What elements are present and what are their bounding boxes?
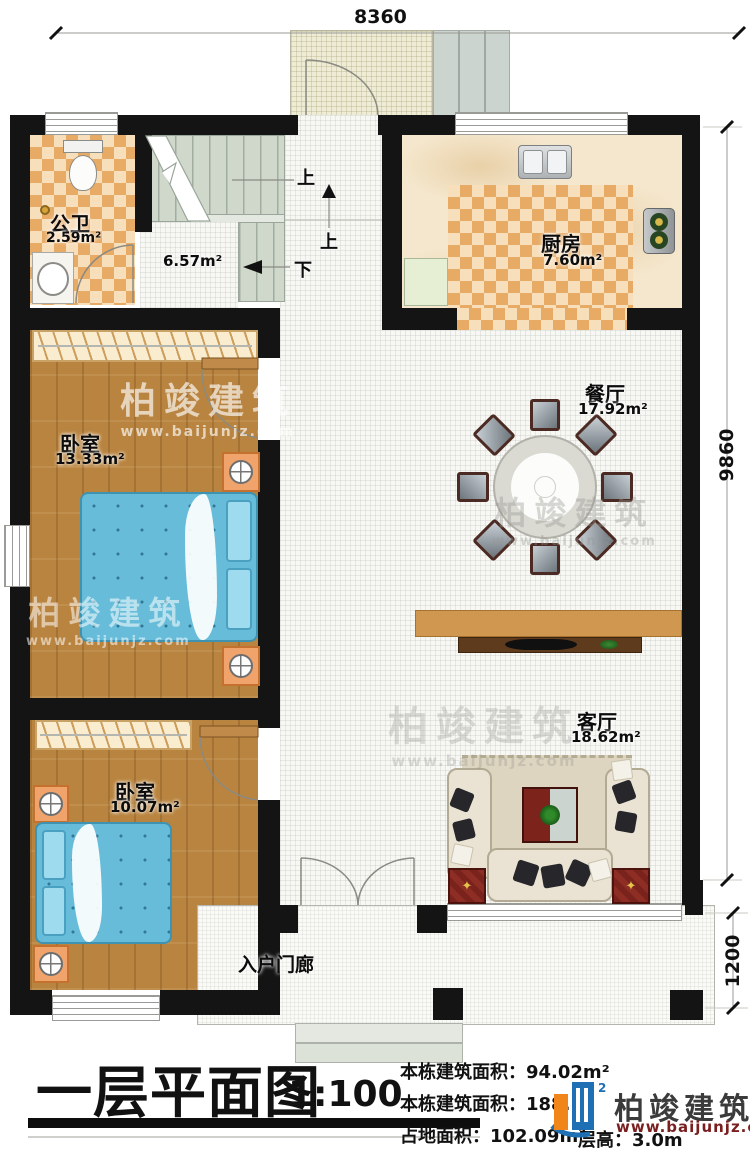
kitchen-area: 7.60m² bbox=[543, 251, 602, 269]
bedroom2-area: 10.07m² bbox=[110, 798, 180, 816]
scale-label: 1:100 bbox=[288, 1074, 403, 1115]
page-title: 一层平面图 bbox=[36, 1048, 321, 1129]
living-area: 18.62m² bbox=[571, 728, 641, 746]
stair-up-label-1: 上 bbox=[297, 164, 315, 190]
info-line-2: 本栋建筑面积：188. bbox=[400, 1090, 570, 1116]
svg-text:2: 2 bbox=[598, 1081, 606, 1095]
company-logo-url: www.baijunjz.com bbox=[616, 1118, 750, 1136]
dining-area: 17.92m² bbox=[578, 400, 648, 418]
stair-hall-area: 6.57m² bbox=[163, 252, 222, 270]
plan-linework bbox=[0, 0, 750, 1165]
dimension-right-lower: 1200 bbox=[722, 934, 744, 988]
dimension-right-upper: 9860 bbox=[716, 428, 738, 482]
bathroom-area: 2.59m² bbox=[46, 230, 101, 246]
porch-label: 入户门廊 bbox=[238, 950, 314, 977]
bedroom1-area: 13.33m² bbox=[55, 450, 125, 468]
company-logo-icon: 2 bbox=[546, 1078, 612, 1140]
stair-down-label: 下 bbox=[294, 256, 312, 282]
dimension-top: 8360 bbox=[350, 6, 411, 28]
floor-plan: ✦ ✦ bbox=[0, 0, 750, 1165]
stair-up-label-2: 上 bbox=[320, 228, 338, 254]
